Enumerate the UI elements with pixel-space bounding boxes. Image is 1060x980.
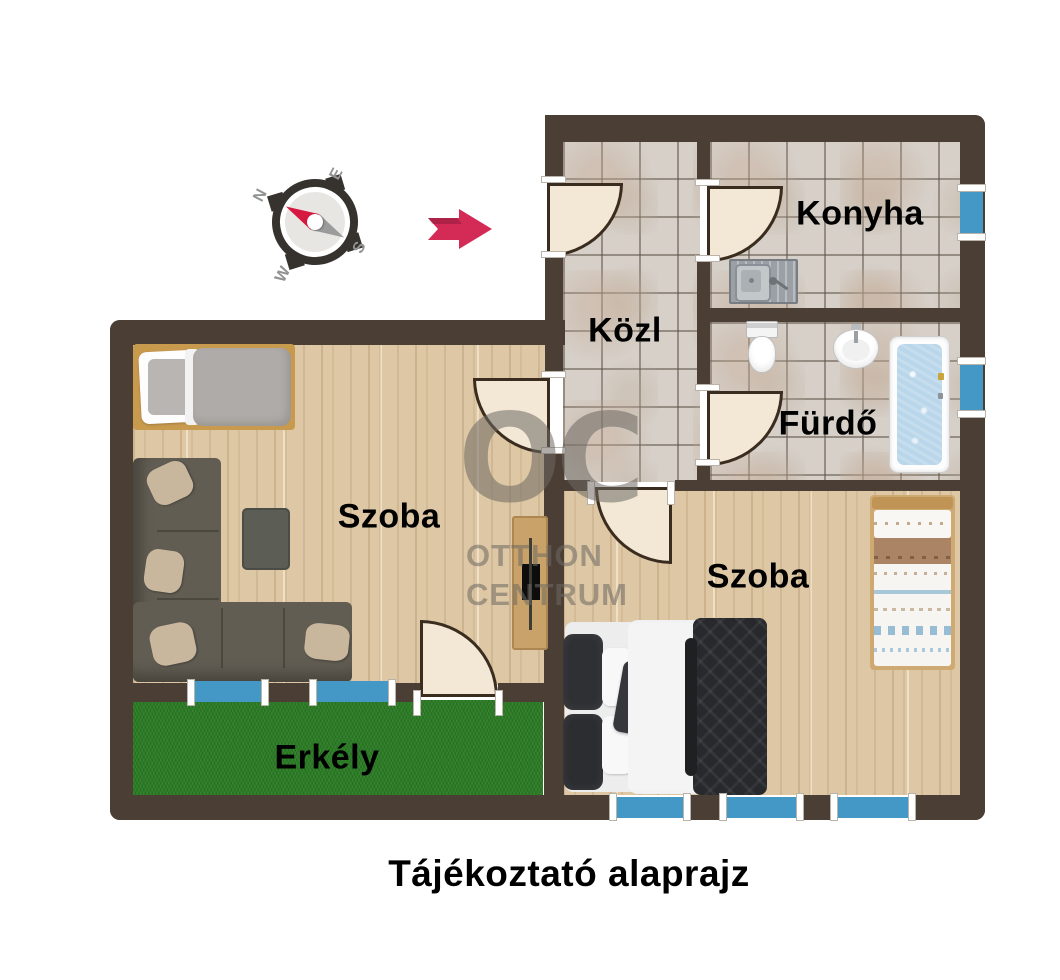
sofa-pillow [142, 548, 185, 595]
window-frame [609, 793, 617, 821]
door-frame [495, 690, 503, 716]
window-frame [830, 793, 838, 821]
door-frame [695, 255, 720, 262]
compass-rose-icon: N E S W [235, 142, 395, 302]
door-frame [413, 690, 421, 716]
door-frame [541, 176, 566, 183]
wall-segment [545, 115, 985, 142]
room-label-furdo: Fürdő [779, 405, 878, 444]
kitchen-sink [729, 259, 798, 304]
window-frame [908, 793, 916, 821]
double-bed [563, 618, 768, 795]
watermark-monogram: OC [458, 398, 639, 520]
door-frame [541, 371, 566, 378]
wall-segment [545, 322, 563, 378]
window-frame [683, 793, 691, 821]
window [838, 797, 908, 818]
wall-segment [498, 683, 546, 702]
window-frame [187, 679, 195, 706]
window-frame [388, 679, 396, 706]
wall-segment [703, 308, 962, 322]
room-label-szoba-left: Szoba [338, 498, 441, 537]
window-frame [309, 679, 317, 706]
window-frame [957, 357, 986, 365]
wall-segment [545, 115, 563, 182]
window [617, 797, 683, 818]
door-frame [695, 179, 720, 186]
window [195, 681, 261, 702]
wall-segment [110, 320, 133, 820]
plan-caption: Tájékoztató alaprajz [388, 853, 750, 895]
kid-bed [870, 495, 955, 670]
room-label-szoba-right: Szoba [707, 558, 810, 597]
red-arrow-icon [428, 207, 496, 251]
tub-faucet [938, 373, 944, 380]
floor-plan: N E S W OC OTTHON CENTRUM Konyha Közl Fü… [0, 0, 1060, 980]
wall-segment [110, 795, 617, 820]
window [960, 365, 983, 410]
window [727, 797, 796, 818]
window-frame [719, 793, 727, 821]
window-frame [957, 184, 986, 192]
wall-segment [110, 320, 565, 345]
toilet [746, 321, 778, 373]
single-bed [133, 344, 295, 430]
compass-south-label: S [350, 239, 371, 257]
corner-sofa [133, 458, 352, 682]
door-frame [695, 459, 720, 466]
window-frame [957, 233, 986, 241]
window [317, 681, 388, 702]
wall-segment [908, 795, 985, 820]
coffee-table [242, 508, 290, 570]
room-label-konyha: Konyha [796, 195, 924, 234]
door-frame [695, 384, 720, 391]
room-label-erkely: Erkély [274, 739, 379, 778]
wall-segment [545, 256, 563, 324]
door-frame [541, 251, 566, 258]
wall-segment [697, 261, 710, 391]
window-frame [261, 679, 269, 706]
watermark-line2: CENTRUM [466, 579, 628, 610]
wall-segment [675, 480, 962, 491]
room-label-kozl: Közl [588, 312, 662, 351]
window-frame [957, 410, 986, 418]
wall-segment [110, 683, 195, 702]
wall-segment [697, 140, 710, 183]
window-frame [796, 793, 804, 821]
washbasin [833, 327, 879, 369]
sofa-pillow [303, 622, 351, 662]
door-frame [667, 481, 675, 505]
watermark-line1: OTTHON [466, 540, 603, 571]
bathtub [889, 336, 950, 473]
window [960, 192, 983, 233]
